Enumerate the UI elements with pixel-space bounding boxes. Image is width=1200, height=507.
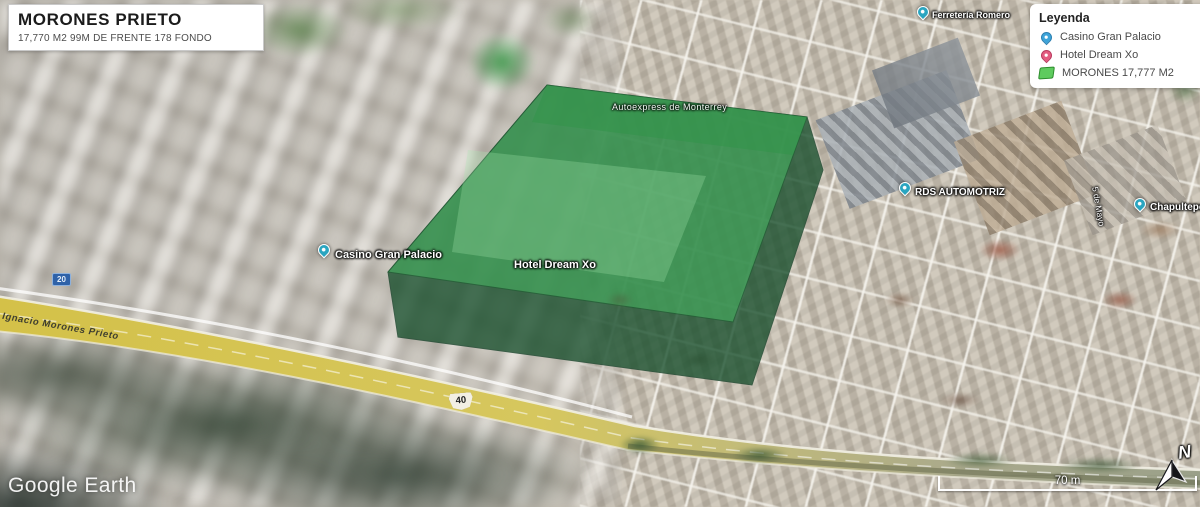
google-earth-watermark: Google Earth bbox=[8, 474, 137, 498]
blue-pin-icon bbox=[1039, 29, 1055, 45]
chapultepec-label[interactable]: Chapultepec bbox=[1150, 202, 1200, 213]
roadside-trees bbox=[0, 0, 1200, 507]
route-shield-20: 20 bbox=[52, 273, 71, 286]
ferreteria-label[interactable]: Ferretería Romero bbox=[932, 10, 1010, 20]
legend-item-casino: Casino Gran Palacio bbox=[1039, 31, 1197, 43]
north-arrow-icon bbox=[1148, 458, 1190, 496]
pink-pin-icon bbox=[1039, 47, 1055, 63]
parcel-info-box: MORONES PRIETO 17,770 M2 99M DE FRENTE 1… bbox=[8, 4, 264, 51]
north-compass[interactable]: N bbox=[1146, 444, 1196, 496]
parcel-title: MORONES PRIETO bbox=[18, 10, 254, 30]
legend-item-label: Casino Gran Palacio bbox=[1060, 31, 1161, 43]
legend-item-label: MORONES 17,777 M2 bbox=[1062, 67, 1174, 79]
rds-label[interactable]: RDS AUTOMOTRIZ bbox=[915, 187, 1005, 198]
legend-item-label: Hotel Dream Xo bbox=[1060, 49, 1138, 61]
legend-title: Leyenda bbox=[1039, 11, 1197, 25]
legend-panel: Leyenda Casino Gran Palacio Hotel Dream … bbox=[1030, 4, 1200, 88]
parcel-subtitle: 17,770 M2 99M DE FRENTE 178 FONDO bbox=[18, 33, 254, 44]
hotel-label[interactable]: Hotel Dream Xo bbox=[514, 259, 596, 271]
legend-item-parcel: MORONES 17,777 M2 bbox=[1039, 67, 1197, 79]
green-polygon-icon bbox=[1038, 66, 1055, 79]
casino-label[interactable]: Casino Gran Palacio bbox=[335, 249, 442, 261]
legend-item-hotel: Hotel Dream Xo bbox=[1039, 49, 1197, 61]
map-viewport[interactable]: Ignacio Morones Prieto 20 40 5 de Mayo C… bbox=[0, 0, 1200, 507]
autoexpress-label[interactable]: Autoexpress de Monterrey bbox=[612, 102, 727, 112]
